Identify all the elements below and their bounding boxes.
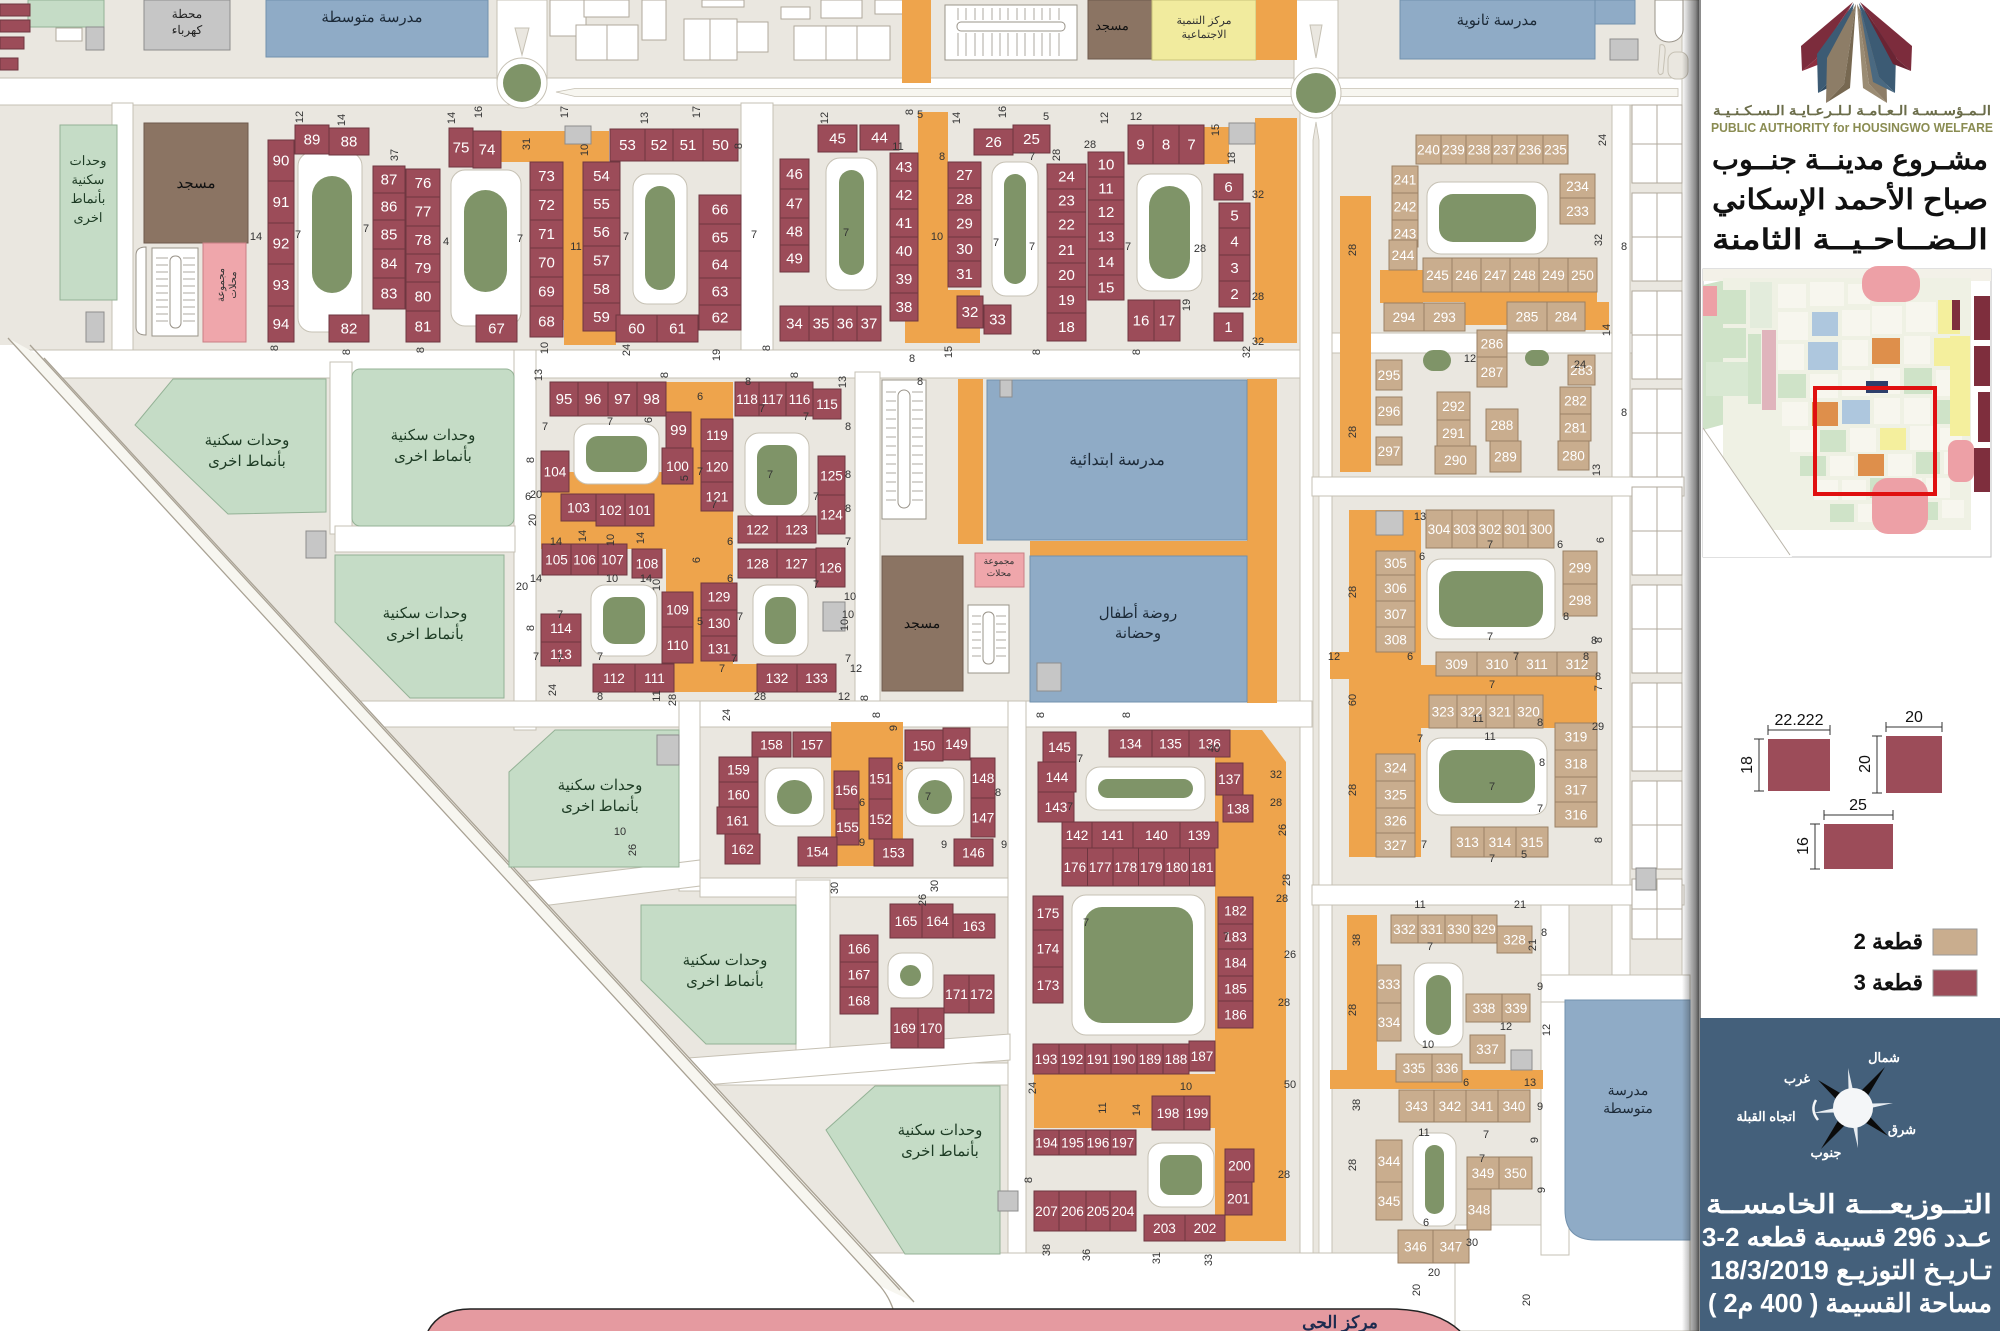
svg-text:16: 16	[473, 106, 485, 118]
svg-text:12: 12	[838, 691, 850, 703]
svg-text:8: 8	[904, 109, 916, 115]
svg-text:82: 82	[341, 321, 358, 338]
svg-text:205: 205	[1087, 1204, 1110, 1219]
svg-text:20: 20	[527, 514, 539, 526]
svg-text:349: 349	[1472, 1166, 1495, 1181]
svg-text:119: 119	[706, 428, 728, 443]
svg-text:33: 33	[1203, 1254, 1215, 1266]
svg-text:122: 122	[746, 523, 769, 538]
svg-text:محطة: محطة	[172, 7, 202, 21]
svg-text:133: 133	[805, 671, 828, 686]
svg-text:72: 72	[538, 197, 555, 214]
svg-text:9: 9	[859, 837, 865, 849]
svg-text:10: 10	[1098, 157, 1115, 174]
svg-text:171: 171	[945, 987, 968, 1002]
svg-text:297: 297	[1378, 444, 1401, 459]
svg-text:324: 324	[1384, 761, 1407, 776]
svg-text:24: 24	[1597, 134, 1609, 146]
svg-text:6: 6	[1407, 651, 1413, 663]
svg-text:95: 95	[556, 391, 573, 408]
svg-text:7: 7	[1487, 539, 1493, 551]
svg-text:90: 90	[273, 153, 290, 170]
svg-text:13: 13	[639, 112, 651, 124]
svg-text:29: 29	[956, 216, 973, 233]
svg-text:6: 6	[1224, 179, 1232, 196]
svg-text:131: 131	[708, 642, 731, 657]
svg-text:314: 314	[1489, 835, 1512, 850]
svg-text:11: 11	[892, 141, 903, 153]
svg-text:10: 10	[606, 573, 618, 585]
svg-text:9: 9	[1001, 839, 1007, 851]
svg-text:196: 196	[1087, 1136, 1110, 1151]
svg-text:174: 174	[1037, 942, 1060, 957]
svg-text:20: 20	[530, 489, 542, 501]
svg-text:298: 298	[1569, 593, 1592, 608]
svg-text:96: 96	[585, 391, 602, 408]
svg-text:30: 30	[829, 882, 841, 894]
svg-text:350: 350	[1504, 1166, 1527, 1181]
svg-text:296: 296	[1378, 404, 1401, 419]
svg-text:60: 60	[1347, 694, 1359, 706]
svg-text:135: 135	[1159, 737, 1182, 752]
svg-text:21: 21	[1514, 899, 1526, 911]
svg-text:85: 85	[381, 227, 398, 244]
svg-text:7: 7	[1417, 733, 1423, 745]
svg-text:181: 181	[1191, 860, 1214, 875]
svg-text:محلات: محلات	[987, 568, 1012, 578]
svg-text:162: 162	[731, 842, 754, 857]
svg-text:202: 202	[1194, 1221, 1217, 1236]
svg-text:51: 51	[680, 137, 697, 154]
svg-text:52: 52	[651, 137, 668, 154]
svg-text:7: 7	[813, 579, 819, 591]
svg-text:58: 58	[593, 281, 610, 298]
svg-text:68: 68	[538, 314, 555, 331]
svg-text:عـدد 296 قسيمة قطعه 2-3: عـدد 296 قسيمة قطعه 2-3	[1702, 1222, 1992, 1252]
svg-text:7: 7	[533, 651, 539, 663]
svg-text:11: 11	[1418, 1127, 1429, 1139]
svg-text:156: 156	[835, 783, 858, 798]
svg-text:309: 309	[1445, 657, 1468, 672]
svg-text:10: 10	[651, 579, 663, 591]
svg-text:319: 319	[1565, 730, 1588, 745]
svg-text:18: 18	[1226, 152, 1238, 164]
svg-text:28: 28	[1347, 426, 1359, 438]
svg-text:24: 24	[1574, 359, 1586, 371]
svg-text:313: 313	[1456, 835, 1479, 850]
svg-text:7: 7	[1029, 241, 1035, 253]
svg-text:7: 7	[751, 229, 757, 241]
svg-text:111: 111	[644, 671, 665, 686]
svg-text:10: 10	[1422, 1039, 1434, 1051]
svg-text:8: 8	[917, 376, 923, 388]
svg-text:14: 14	[1131, 1104, 1143, 1116]
svg-text:7: 7	[711, 499, 717, 511]
svg-text:26: 26	[1284, 949, 1296, 961]
svg-text:7: 7	[843, 227, 849, 239]
svg-text:38: 38	[1351, 1099, 1363, 1111]
svg-text:195: 195	[1061, 1136, 1084, 1151]
svg-text:15: 15	[943, 346, 955, 358]
svg-text:9: 9	[941, 839, 947, 851]
svg-text:36: 36	[837, 316, 854, 333]
svg-text:140: 140	[1145, 828, 1168, 843]
svg-text:شمال: شمال	[1868, 1050, 1900, 1065]
svg-text:كهرباء: كهرباء	[172, 23, 203, 37]
svg-text:8: 8	[597, 691, 603, 703]
svg-text:وحدات سكنية: وحدات سكنية	[205, 432, 290, 449]
svg-text:115: 115	[816, 397, 838, 412]
svg-text:محلات: محلات	[228, 271, 239, 298]
svg-text:14: 14	[250, 231, 262, 243]
svg-text:8: 8	[995, 787, 1001, 799]
svg-text:30: 30	[1466, 1237, 1478, 1249]
svg-text:323: 323	[1432, 705, 1455, 720]
svg-text:بأنماط اخرى: بأنماط اخرى	[394, 446, 472, 465]
svg-text:18: 18	[1058, 319, 1075, 336]
svg-text:10: 10	[842, 609, 854, 621]
svg-text:22: 22	[1058, 217, 1075, 234]
svg-text:28: 28	[667, 694, 679, 706]
svg-text:308: 308	[1384, 633, 1407, 648]
svg-text:11: 11	[651, 690, 663, 701]
svg-text:200: 200	[1228, 1159, 1251, 1174]
svg-text:27: 27	[956, 167, 973, 184]
svg-text:8: 8	[659, 372, 671, 378]
svg-text:94: 94	[273, 316, 290, 333]
svg-text:80: 80	[415, 289, 432, 306]
svg-text:مدرسة ابتدائية: مدرسة ابتدائية	[1069, 452, 1165, 469]
svg-text:164: 164	[926, 914, 949, 929]
svg-text:بأنماط اخرى: بأنماط اخرى	[208, 451, 286, 470]
svg-text:7: 7	[731, 653, 737, 665]
svg-text:بأنماط: بأنماط	[71, 189, 106, 206]
svg-text:59: 59	[593, 309, 610, 326]
svg-text:203: 203	[1153, 1221, 1176, 1236]
svg-text:12: 12	[1328, 651, 1340, 663]
svg-text:318: 318	[1565, 757, 1588, 772]
svg-text:123: 123	[785, 523, 808, 538]
svg-text:9: 9	[888, 725, 900, 731]
svg-text:344: 344	[1378, 1154, 1401, 1169]
svg-text:41: 41	[896, 215, 913, 232]
svg-text:9: 9	[1537, 1101, 1543, 1113]
svg-text:326: 326	[1384, 814, 1407, 829]
svg-text:50: 50	[712, 137, 729, 154]
svg-text:26: 26	[985, 134, 1002, 151]
svg-text:7: 7	[845, 536, 851, 548]
svg-text:84: 84	[381, 256, 398, 273]
svg-text:342: 342	[1439, 1099, 1462, 1114]
svg-text:281: 281	[1564, 421, 1587, 436]
svg-text:وحدات سكنية: وحدات سكنية	[558, 777, 643, 794]
svg-text:الـضــاحـيــة الثامنة: الـضــاحـيــة الثامنة	[1712, 224, 1988, 255]
svg-text:8: 8	[939, 151, 945, 163]
svg-text:7: 7	[557, 609, 563, 621]
svg-text:32: 32	[1593, 234, 1605, 246]
svg-text:99: 99	[670, 422, 687, 439]
svg-text:5: 5	[679, 475, 691, 481]
svg-text:88: 88	[341, 134, 358, 151]
svg-text:غرب: غرب	[1784, 1071, 1810, 1087]
svg-text:5: 5	[917, 109, 923, 121]
svg-text:11: 11	[570, 241, 581, 253]
svg-text:73: 73	[538, 168, 555, 185]
svg-text:157: 157	[801, 738, 824, 753]
svg-text:8: 8	[1537, 717, 1543, 729]
svg-text:7: 7	[1421, 839, 1427, 851]
svg-text:83: 83	[381, 286, 398, 303]
svg-text:191: 191	[1087, 1052, 1110, 1067]
svg-text:7: 7	[1083, 917, 1089, 929]
svg-text:107: 107	[601, 553, 624, 568]
svg-text:87: 87	[381, 172, 398, 189]
svg-text:182: 182	[1224, 904, 1247, 919]
svg-text:139: 139	[1188, 828, 1211, 843]
svg-text:16: 16	[1133, 313, 1150, 330]
svg-text:28: 28	[956, 191, 973, 208]
svg-text:44: 44	[871, 130, 888, 147]
svg-text:37: 37	[861, 316, 878, 333]
svg-text:295: 295	[1378, 368, 1401, 383]
svg-text:334: 334	[1378, 1015, 1401, 1030]
svg-text:74: 74	[479, 142, 496, 159]
svg-text:126: 126	[819, 561, 842, 576]
svg-text:6: 6	[1423, 1217, 1429, 1229]
svg-text:36: 36	[1081, 1249, 1093, 1261]
svg-text:10: 10	[614, 826, 626, 838]
svg-text:150: 150	[913, 739, 936, 754]
svg-text:28: 28	[754, 691, 766, 703]
svg-text:311: 311	[1526, 657, 1548, 672]
svg-text:التــوزيعـــة الخامســة: التــوزيعـــة الخامســة	[1706, 1189, 1992, 1220]
svg-text:241: 241	[1394, 173, 1417, 188]
svg-text:143: 143	[1045, 800, 1068, 815]
svg-text:12: 12	[850, 663, 862, 675]
svg-text:1: 1	[1224, 319, 1232, 336]
svg-text:114: 114	[550, 621, 572, 636]
svg-text:63: 63	[712, 284, 729, 301]
svg-text:176: 176	[1063, 860, 1086, 875]
svg-text:64: 64	[712, 257, 729, 274]
svg-text:38: 38	[1351, 934, 1363, 946]
svg-text:13: 13	[1591, 464, 1603, 476]
svg-text:12: 12	[294, 111, 306, 123]
svg-text:284: 284	[1555, 310, 1578, 325]
svg-text:325: 325	[1384, 788, 1407, 803]
svg-text:28: 28	[1347, 1159, 1359, 1171]
svg-text:6: 6	[1595, 537, 1607, 543]
svg-text:310: 310	[1486, 657, 1509, 672]
svg-text:7: 7	[597, 651, 603, 663]
svg-text:42: 42	[896, 187, 913, 204]
svg-text:185: 185	[1224, 982, 1247, 997]
svg-text:8: 8	[525, 625, 537, 631]
svg-text:333: 333	[1378, 977, 1401, 992]
svg-text:104: 104	[544, 465, 567, 480]
svg-text:288: 288	[1491, 418, 1514, 433]
svg-text:54: 54	[593, 168, 610, 185]
svg-text:17: 17	[691, 106, 703, 118]
svg-text:120: 120	[706, 460, 729, 475]
svg-text:24: 24	[1058, 169, 1075, 186]
svg-text:صباح الأحمد الإسكاني: صباح الأحمد الإسكاني	[1712, 182, 1988, 217]
svg-text:38: 38	[1041, 1244, 1053, 1256]
svg-text:40: 40	[896, 243, 913, 260]
svg-text:7: 7	[1489, 853, 1495, 865]
svg-text:190: 190	[1113, 1052, 1136, 1067]
svg-text:26: 26	[627, 844, 639, 856]
svg-text:97: 97	[614, 391, 631, 408]
svg-text:13: 13	[1414, 511, 1426, 523]
svg-text:2: 2	[1230, 286, 1238, 303]
svg-text:332: 332	[1393, 922, 1416, 937]
svg-text:9: 9	[1136, 137, 1144, 154]
svg-text:10: 10	[844, 591, 856, 603]
svg-text:178: 178	[1114, 860, 1137, 875]
svg-text:160: 160	[727, 788, 750, 803]
svg-text:19: 19	[711, 349, 723, 361]
svg-text:145: 145	[1048, 740, 1071, 755]
svg-text:14: 14	[446, 112, 458, 124]
svg-text:118: 118	[736, 392, 758, 407]
svg-text:152: 152	[869, 812, 892, 827]
svg-text:قطعة 2: قطعة 2	[1854, 929, 1923, 954]
svg-text:14: 14	[1098, 254, 1115, 271]
svg-text:169: 169	[893, 1021, 916, 1036]
svg-text:13: 13	[1524, 1077, 1536, 1089]
svg-text:338: 338	[1473, 1001, 1496, 1016]
svg-text:12: 12	[1099, 112, 1111, 124]
svg-text:31: 31	[1151, 1252, 1163, 1264]
svg-text:69: 69	[538, 284, 555, 301]
svg-text:14: 14	[530, 573, 542, 585]
svg-text:144: 144	[1046, 770, 1069, 785]
svg-text:242: 242	[1394, 200, 1417, 215]
svg-text:28: 28	[1278, 1169, 1290, 1181]
svg-text:20: 20	[1058, 267, 1075, 284]
svg-text:250: 250	[1571, 268, 1594, 283]
svg-text:305: 305	[1384, 556, 1407, 571]
svg-text:34: 34	[786, 316, 803, 333]
svg-text:243: 243	[1394, 227, 1417, 242]
svg-text:20: 20	[1857, 755, 1874, 773]
svg-text:301: 301	[1504, 522, 1527, 537]
svg-text:246: 246	[1455, 268, 1478, 283]
svg-text:20: 20	[516, 581, 528, 593]
svg-text:179: 179	[1140, 860, 1163, 875]
svg-text:8: 8	[1131, 349, 1143, 355]
svg-text:60: 60	[628, 321, 645, 338]
svg-text:12: 12	[1541, 1024, 1553, 1036]
svg-text:28: 28	[1276, 893, 1288, 905]
svg-text:43: 43	[896, 159, 913, 176]
svg-text:8: 8	[859, 695, 871, 701]
svg-text:7: 7	[517, 233, 523, 245]
svg-text:مسجد: مسجد	[177, 175, 216, 192]
svg-text:6: 6	[1463, 1077, 1469, 1089]
svg-text:12: 12	[1500, 1021, 1512, 1033]
svg-text:26: 26	[917, 894, 929, 906]
svg-text:78: 78	[415, 232, 432, 249]
svg-text:240: 240	[1417, 143, 1440, 158]
svg-text:6: 6	[697, 391, 703, 403]
svg-text:37: 37	[389, 149, 401, 161]
svg-text:وحدات سكنية: وحدات سكنية	[383, 605, 468, 622]
svg-text:25: 25	[1849, 797, 1867, 814]
svg-text:مسجد: مسجد	[904, 615, 940, 631]
svg-text:236: 236	[1519, 143, 1542, 158]
svg-text:الـمـؤسـسـة الـعـامـة لـلـرعـا: الـمـؤسـسـة الـعـامـة لـلـرعـايـة الـسـك…	[1713, 103, 1991, 119]
svg-text:138: 138	[1227, 802, 1250, 817]
svg-text:مجموعة: مجموعة	[216, 268, 227, 302]
svg-text:8: 8	[1593, 837, 1605, 843]
svg-text:50: 50	[1284, 1079, 1296, 1091]
svg-text:32: 32	[1252, 336, 1264, 348]
svg-text:45: 45	[829, 131, 846, 148]
svg-text:28: 28	[1347, 586, 1359, 598]
svg-text:20: 20	[1428, 1267, 1440, 1279]
svg-text:جنوب: جنوب	[1811, 1145, 1842, 1161]
svg-text:28: 28	[1194, 243, 1206, 255]
svg-text:193: 193	[1035, 1052, 1058, 1067]
svg-text:اخرى: اخرى	[74, 210, 103, 226]
svg-text:180: 180	[1165, 860, 1188, 875]
svg-text:24: 24	[547, 684, 559, 696]
svg-text:28: 28	[1252, 291, 1264, 303]
svg-text:9: 9	[1536, 1187, 1548, 1193]
svg-text:248: 248	[1513, 268, 1536, 283]
svg-text:28: 28	[1084, 139, 1096, 151]
svg-text:21: 21	[1058, 242, 1075, 259]
svg-text:71: 71	[538, 226, 555, 243]
svg-text:7: 7	[803, 411, 809, 423]
svg-text:7: 7	[1487, 631, 1493, 643]
svg-text:6: 6	[1419, 551, 1425, 563]
svg-text:292: 292	[1442, 399, 1465, 414]
svg-text:132: 132	[766, 671, 789, 686]
svg-text:184: 184	[1224, 956, 1247, 971]
svg-text:189: 189	[1139, 1052, 1162, 1067]
svg-text:49: 49	[786, 251, 803, 268]
svg-text:67: 67	[488, 321, 505, 338]
svg-text:38: 38	[896, 299, 913, 316]
svg-text:29: 29	[1592, 721, 1604, 733]
svg-text:249: 249	[1542, 268, 1565, 283]
svg-text:7: 7	[1489, 781, 1495, 793]
svg-text:321: 321	[1489, 705, 1512, 720]
svg-text:197: 197	[1112, 1136, 1135, 1151]
svg-text:6: 6	[727, 573, 733, 585]
svg-text:307: 307	[1384, 607, 1407, 622]
svg-text:167: 167	[848, 968, 871, 983]
svg-text:11: 11	[1098, 181, 1114, 198]
svg-text:24: 24	[621, 344, 633, 356]
svg-text:مسجد: مسجد	[1095, 18, 1129, 33]
svg-text:30: 30	[929, 880, 941, 892]
svg-text:16: 16	[997, 106, 1009, 118]
svg-text:165: 165	[895, 914, 918, 929]
svg-text:8: 8	[1583, 651, 1589, 663]
svg-text:6: 6	[1557, 539, 1563, 551]
svg-text:75: 75	[453, 140, 470, 157]
svg-text:7: 7	[719, 663, 725, 675]
svg-text:124: 124	[820, 508, 843, 523]
svg-text:137: 137	[1218, 772, 1241, 787]
svg-text:بأنماط اخرى: بأنماط اخرى	[561, 796, 639, 815]
svg-text:186: 186	[1224, 1008, 1247, 1023]
svg-text:28: 28	[1281, 874, 1293, 886]
